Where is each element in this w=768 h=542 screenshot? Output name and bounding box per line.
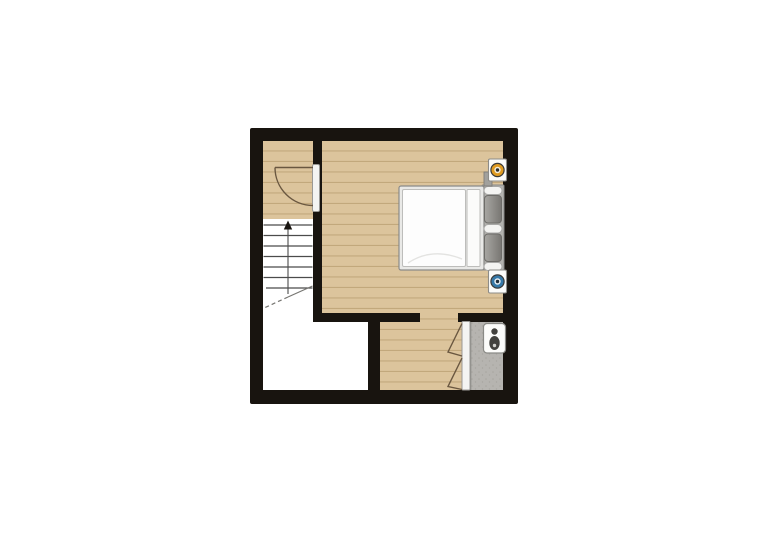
toilet-pan [489,336,499,350]
bolster-cushion [484,187,502,195]
bed-sheet-fold [467,190,480,267]
blue-wall-fixture [489,270,507,293]
double-bed [399,185,504,271]
bolster-cushion [484,263,502,271]
toilet-flush-button [491,328,497,334]
landing-floor [263,141,313,219]
floor-plan-page [0,0,768,542]
fixture-center-dot [496,280,499,283]
bolster-cushion [484,225,502,234]
orange-wall-fixture [489,159,507,181]
floor-plan-image [0,0,768,542]
toilet-pan-hole [493,344,496,347]
hallway-floor [380,322,470,390]
toilet [484,324,506,354]
pillow [485,234,502,262]
fixture-center-dot [496,168,499,171]
bathroom-threshold [462,322,470,391]
bedroom-doorway-opening [420,313,458,322]
bed-duvet [403,190,466,267]
door-threshold [313,165,320,212]
storage-room-floor [313,322,368,390]
pillow [485,196,502,224]
